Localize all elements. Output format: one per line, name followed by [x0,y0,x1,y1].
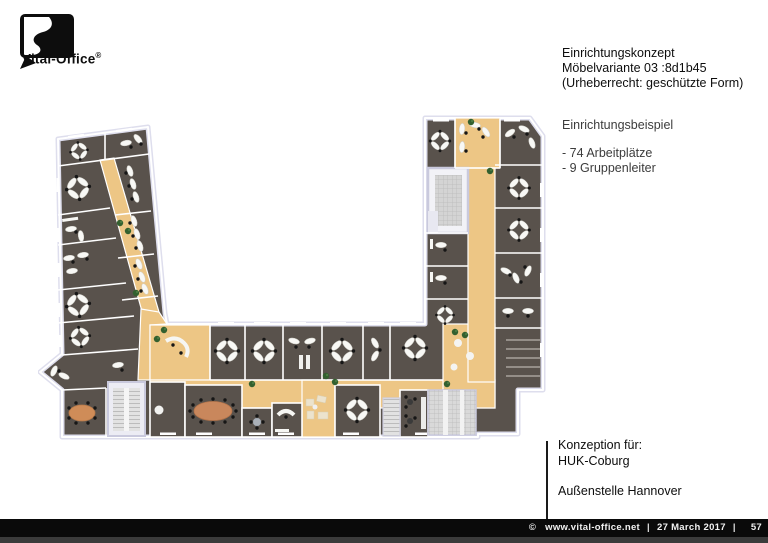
footer-separator: | [733,522,736,533]
registered-mark: ® [95,51,101,60]
client-block-rule [546,441,548,519]
logo-brand-text: Vital-Office [22,52,95,67]
footer-substrip [0,537,768,543]
staircase-bottom-right [428,390,476,435]
example-title: Einrichtungsbeispiel [562,118,673,133]
groupleaders-count: - 9 Gruppenleiter [562,161,673,176]
concept-header: Einrichtungskonzept Möbelvariante 03 :8d… [562,46,743,91]
workstations-count: - 74 Arbeitplätze [562,146,673,161]
client-block: Konzeption für: HUK-Coburg Außenstelle H… [558,438,682,500]
footer-date: 27 March 2017 [657,522,726,533]
footer-page-number: 57 [751,522,762,533]
staircase-left [108,382,145,436]
logo-wordmark: Vital-Office® [22,51,102,67]
copyright-note: (Urheberrecht: geschützte Form) [562,76,743,91]
client-location: Außenstelle Hannover [558,484,682,500]
footer-separator: | [647,522,650,533]
atrium [428,168,468,233]
staircase-small [383,398,400,436]
footer-text: ©www.vital-office.net|27 March 2017|57 [529,522,762,533]
client-name: HUK-Coburg [558,454,682,470]
example-block: Einrichtungsbeispiel - 74 Arbeitplätze -… [562,118,673,176]
concept-title: Einrichtungskonzept [562,46,743,61]
client-label: Konzeption für: [558,438,682,454]
floor-plan-image [38,103,548,443]
copyright-symbol: © [529,522,536,533]
concept-variant: Möbelvariante 03 :8d1b45 [562,61,743,76]
footer-website: www.vital-office.net [545,522,640,533]
